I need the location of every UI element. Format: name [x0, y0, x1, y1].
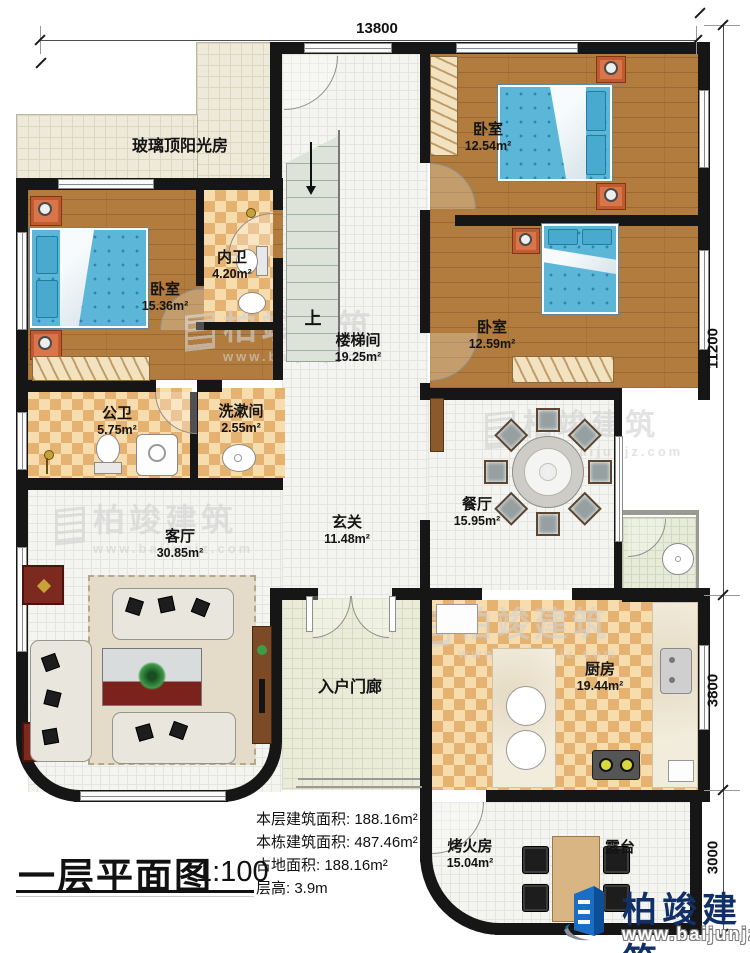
- pillow: [36, 280, 58, 318]
- stat-footprint-area: 占地面积: 188.16m²: [256, 854, 388, 875]
- wardrobe: [512, 356, 614, 383]
- wall: [16, 478, 283, 490]
- sink-drain: [669, 677, 675, 683]
- wall: [197, 380, 222, 392]
- wall: [420, 600, 432, 790]
- sofa-icon: [112, 588, 234, 640]
- room-label-public-bath: 公卫 5.75m²: [97, 406, 137, 438]
- room-label-bedroom-left: 卧室 15.36m²: [142, 282, 189, 314]
- room-label-terrace: 露台: [605, 840, 635, 857]
- washing-machine-door: [148, 444, 166, 462]
- wall: [572, 588, 632, 600]
- sink-icon: [222, 444, 256, 472]
- window: [58, 179, 154, 189]
- door-panel: [306, 596, 313, 632]
- window: [456, 43, 578, 53]
- lamp-icon: [519, 233, 532, 246]
- room-label-kitchen: 厨房 19.44m²: [577, 662, 624, 694]
- stair-up-label: 上: [305, 304, 322, 329]
- toilet-icon: [96, 434, 120, 464]
- room-label-bedroom-tr: 卧室 12.54m²: [465, 122, 512, 154]
- wall: [622, 510, 698, 515]
- wall: [392, 588, 430, 600]
- window: [304, 43, 392, 53]
- dimension-label-top: 13800: [347, 20, 407, 37]
- chair-icon: [588, 460, 612, 484]
- title-underline: [16, 890, 254, 893]
- dimension-line-right: [723, 25, 724, 935]
- pillow: [582, 229, 612, 245]
- pillow: [586, 91, 606, 131]
- sofa-icon: [30, 640, 92, 762]
- stair-arrow-head: [306, 186, 316, 195]
- sink-icon: [238, 292, 266, 314]
- wall: [273, 258, 283, 380]
- wall: [270, 42, 282, 190]
- wall: [273, 190, 283, 210]
- room-label-foyer: 玄关 11.48m²: [324, 515, 370, 547]
- window: [699, 90, 709, 168]
- window: [17, 412, 27, 470]
- washing-machine-icon: [136, 434, 178, 476]
- wardrobe: [430, 56, 458, 156]
- chair-icon: [536, 408, 560, 432]
- room-label-sunroom: 玻璃顶阳光房: [132, 138, 228, 156]
- room-label-porch: 入户门廊: [318, 679, 382, 697]
- bed-sheet: [544, 248, 616, 274]
- lamp-icon: [38, 336, 52, 350]
- sofa-pillow: [158, 596, 176, 614]
- wall: [622, 588, 710, 602]
- porch-step: [298, 778, 420, 780]
- floor-sunroom: [196, 42, 274, 179]
- basin-icon: [506, 686, 546, 726]
- sink-drain: [669, 657, 675, 663]
- title-underline-thin: [16, 896, 254, 897]
- toilet-tank: [94, 462, 122, 474]
- side-table: [22, 565, 64, 605]
- counter-appliance: [668, 760, 694, 782]
- sofa-pillow: [135, 723, 154, 742]
- sink-drain: [234, 454, 242, 462]
- bed-icon: [30, 228, 148, 328]
- dimension-tick: [694, 7, 705, 18]
- wall: [428, 388, 622, 400]
- chair-icon: [522, 884, 549, 912]
- partition-screen: [430, 398, 444, 452]
- side-table-decor: [37, 579, 51, 593]
- brand-url: www.baijunjz.com: [622, 924, 750, 945]
- sink-icon: [662, 543, 694, 575]
- room-label-washroom: 洗漱间 2.55m²: [218, 404, 263, 436]
- plant-icon: [257, 645, 267, 655]
- stat-building-area: 本栋建筑面积: 487.46m²: [256, 831, 418, 852]
- room-label-bedroom-mr: 卧室 12.59m²: [469, 320, 516, 352]
- room-label-dining: 餐厅 15.95m²: [454, 497, 501, 529]
- nightstand: [596, 56, 626, 83]
- window: [615, 436, 623, 542]
- floor-lamp-stem: [46, 458, 48, 474]
- kitchen-sink-icon: [660, 648, 692, 694]
- tv-icon: [259, 679, 265, 713]
- dimension-label-right-middle: 3800: [705, 649, 722, 733]
- room-label-living: 客厅 30.85m²: [157, 529, 204, 561]
- stove-icon: [592, 750, 640, 780]
- door-panel: [389, 596, 396, 632]
- dimension-label-right-upper: 11200: [705, 307, 722, 391]
- burner: [620, 758, 634, 772]
- pillow: [586, 135, 606, 175]
- dimension-line-top: [40, 40, 697, 41]
- dimension-tick: [35, 57, 46, 68]
- wardrobe: [32, 356, 150, 381]
- chair-icon: [484, 460, 508, 484]
- brand-logo-icon: [560, 880, 618, 942]
- nightstand: [512, 228, 540, 254]
- room-label-inner-bath: 内卫 4.20m²: [212, 250, 252, 282]
- wall: [420, 210, 430, 333]
- wall: [696, 510, 699, 590]
- nightstand: [30, 196, 62, 226]
- basin-icon: [506, 730, 546, 770]
- sink-drain: [675, 556, 681, 562]
- window: [80, 791, 226, 801]
- floor-plan: 柏竣建筑 www.baijunjz.com 柏竣建筑 www.baijunjz.…: [0, 0, 750, 953]
- lamp-icon: [604, 61, 618, 75]
- lamp-icon: [604, 188, 618, 202]
- brand-logo: 柏竣建筑 www.baijunjz.com: [560, 878, 750, 950]
- faucet-icon: [246, 208, 256, 218]
- bed-icon: [498, 85, 612, 181]
- burner: [599, 758, 613, 772]
- wall: [196, 190, 204, 286]
- window: [17, 232, 27, 330]
- chair-icon: [536, 512, 560, 536]
- sofa-pillow: [42, 728, 59, 745]
- plant-icon: [138, 662, 166, 690]
- stat-storey-height: 层高: 3.9m: [256, 877, 328, 898]
- sofa-pillow: [125, 597, 144, 616]
- sofa-icon: [112, 712, 236, 764]
- sofa-pillow: [41, 653, 60, 672]
- dining-table-center: [539, 463, 557, 481]
- tv-cabinet: [252, 626, 272, 744]
- wall: [486, 790, 702, 802]
- lamp-icon: [38, 202, 52, 216]
- chair-icon: [522, 846, 549, 874]
- sofa-pillow: [43, 689, 61, 707]
- pillow: [548, 229, 578, 245]
- pillow: [36, 236, 58, 274]
- sofa-pillow: [191, 598, 211, 618]
- stair-rail: [338, 130, 340, 362]
- bed-sheet: [550, 87, 586, 179]
- stat-floor-area: 本层建筑面积: 188.16m²: [256, 808, 418, 829]
- stair-direction-arrow: [310, 142, 312, 186]
- sofa-pillow: [169, 721, 188, 740]
- bed-icon: [542, 224, 618, 314]
- wall: [420, 54, 430, 163]
- bed-sheet: [60, 230, 94, 326]
- room-label-fire-room: 烤火房 15.04m²: [447, 839, 494, 871]
- fridge-icon: [436, 604, 478, 634]
- porch-step: [296, 786, 422, 788]
- room-label-stairwell: 楼梯间 19.25m²: [335, 333, 382, 365]
- nightstand: [596, 183, 626, 210]
- wall: [196, 322, 273, 330]
- wall: [16, 380, 156, 392]
